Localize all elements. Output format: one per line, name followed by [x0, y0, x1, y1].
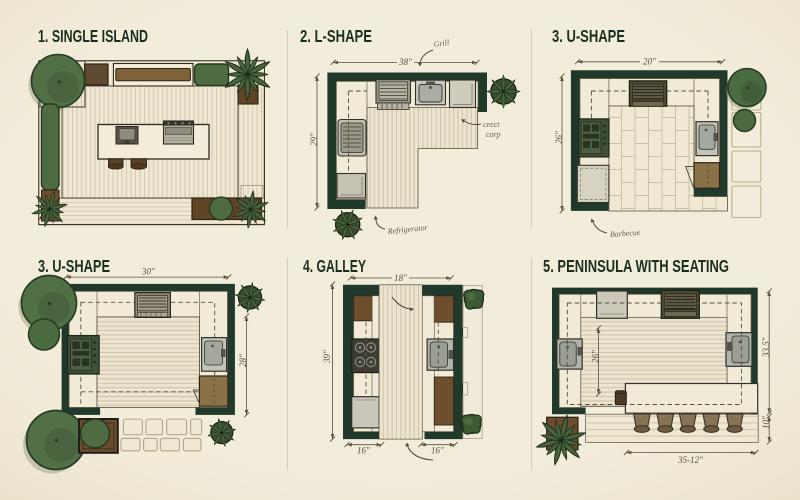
svg-text:28″: 28″ [238, 354, 248, 367]
svg-text:16″: 16″ [431, 446, 444, 456]
svg-text:corp: corp [486, 130, 501, 139]
svg-text:ceect: ceect [483, 120, 500, 129]
svg-text:35-12″: 35-12″ [677, 455, 703, 465]
svg-text:3. U-SHAPE: 3. U-SHAPE [38, 256, 110, 276]
svg-text:16″: 16″ [357, 446, 370, 456]
svg-text:2. L-SHAPE: 2. L-SHAPE [300, 26, 372, 46]
svg-text:39″: 39″ [322, 350, 332, 364]
svg-text:1. SINGLE ISLAND: 1. SINGLE ISLAND [38, 26, 148, 46]
svg-text:18″: 18″ [394, 273, 407, 283]
svg-text:26″: 26″ [591, 350, 601, 363]
svg-text:26″: 26″ [554, 131, 564, 144]
svg-text:33.5″: 33.5″ [761, 337, 771, 358]
svg-text:38″: 38″ [398, 57, 412, 67]
svg-text:29″: 29″ [309, 133, 319, 146]
svg-text:30″: 30″ [141, 267, 155, 277]
svg-text:20″: 20″ [643, 57, 656, 67]
svg-text:4. GALLEY: 4. GALLEY [303, 256, 366, 276]
svg-text:5. PENINSULA WITH SEATING: 5. PENINSULA WITH SEATING [543, 256, 729, 276]
svg-text:3. U-SHAPE: 3. U-SHAPE [552, 26, 625, 46]
svg-text:10″: 10″ [761, 416, 771, 429]
